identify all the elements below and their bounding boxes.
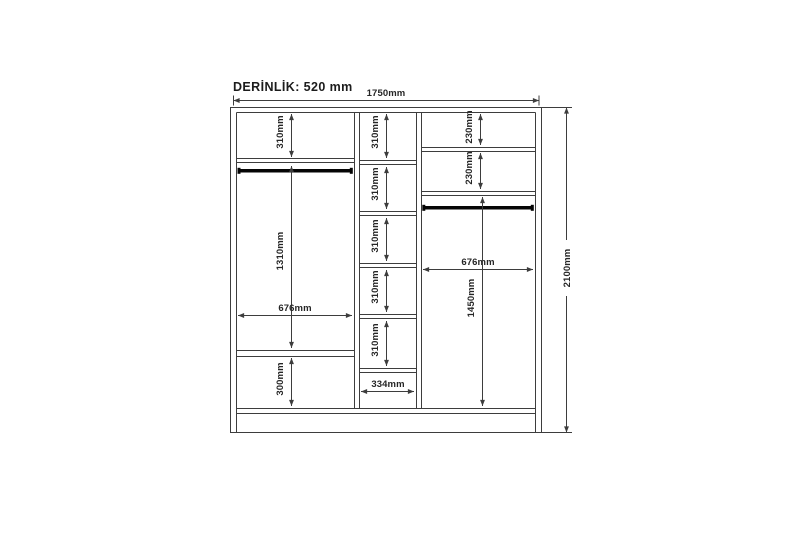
dim-right-compartment-2-label: 230mm (464, 151, 475, 184)
dim-left-top-compartment-label: 310mm (275, 115, 286, 148)
dim-middle-compartment-5-label: 310mm (370, 323, 381, 356)
dim-overall-width-label: 1750mm (367, 88, 406, 99)
hanging-rod-right (422, 205, 534, 211)
technical-drawing-page: 1750mm 2100mm 310mm 1310mm 676mm 300mm (0, 0, 800, 533)
dim-middle-compartment-1: 310mm (370, 114, 387, 158)
middle-column-shelves (360, 161, 417, 373)
vertical-divider-right (417, 113, 422, 409)
dim-overall-height: 2100mm (542, 108, 575, 433)
dim-middle-compartment-1-label: 310mm (370, 115, 381, 148)
dim-middle-compartment-2-label: 310mm (370, 167, 381, 200)
dim-middle-compartment-5: 310mm (370, 321, 387, 366)
depth-label: DERİNLİK: 520 mm (233, 79, 353, 94)
dim-right-hanging-area: 1450mm (466, 197, 483, 406)
dim-right-compartment-1: 230mm (464, 110, 481, 145)
dim-left-top-compartment: 310mm (275, 114, 292, 157)
dim-left-bottom-compartment-label: 300mm (275, 362, 286, 395)
hanging-rod-left (238, 168, 353, 174)
dim-right-width-label: 676mm (461, 257, 494, 268)
vertical-divider-left (355, 113, 360, 409)
dim-right-compartment-1-label: 230mm (464, 110, 475, 143)
dim-middle-width: 334mm (361, 379, 414, 392)
dim-middle-width-label: 334mm (371, 379, 404, 390)
dim-overall-height-label: 2100mm (562, 249, 573, 288)
dim-middle-compartment-3: 310mm (370, 218, 387, 261)
left-column-shelves (237, 159, 355, 357)
dim-left-width: 676mm (238, 303, 352, 316)
dim-middle-compartment-3-label: 310mm (370, 219, 381, 252)
dim-right-hanging-area-label: 1450mm (466, 279, 477, 318)
dim-middle-compartment-2: 310mm (370, 167, 387, 209)
dim-left-hanging-area-label: 1310mm (275, 232, 286, 271)
dim-right-compartment-2: 230mm (464, 151, 481, 189)
right-column-shelves (422, 148, 536, 196)
dim-left-width-label: 676mm (278, 303, 311, 314)
dim-right-width: 676mm (423, 257, 533, 270)
wardrobe-technical-drawing: 1750mm 2100mm 310mm 1310mm 676mm 300mm (0, 0, 800, 533)
dim-left-bottom-compartment: 300mm (275, 358, 292, 406)
dim-middle-compartment-4-label: 310mm (370, 270, 381, 303)
dim-left-hanging-area: 1310mm (275, 166, 292, 348)
dim-middle-compartment-4: 310mm (370, 270, 387, 312)
